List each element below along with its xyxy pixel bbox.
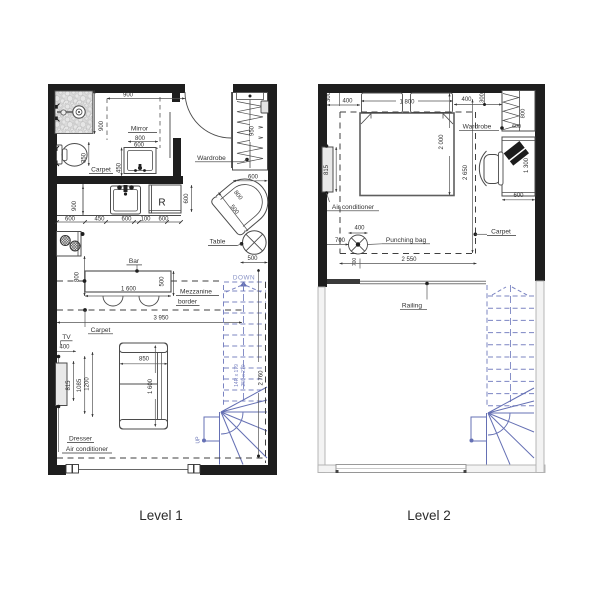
- svg-text:Carpet: Carpet: [91, 167, 111, 174]
- svg-text:850: 850: [139, 357, 150, 363]
- svg-text:Level 2: Level 2: [407, 508, 451, 523]
- svg-text:2 000: 2 000: [439, 134, 445, 150]
- svg-text:800: 800: [74, 271, 80, 282]
- svg-text:400: 400: [342, 98, 353, 104]
- svg-text:TV: TV: [62, 334, 71, 341]
- svg-text:600: 600: [513, 193, 524, 199]
- svg-text:DOWN: DOWN: [233, 275, 255, 282]
- svg-text:600: 600: [158, 217, 169, 223]
- svg-text:1 800: 1 800: [399, 99, 415, 105]
- svg-text:Air conditioner: Air conditioner: [66, 446, 109, 453]
- svg-text:800: 800: [520, 109, 526, 119]
- svg-text:Railing: Railing: [402, 302, 422, 309]
- svg-text:2 550: 2 550: [401, 257, 417, 263]
- svg-text:700: 700: [352, 258, 358, 267]
- svg-text:600: 600: [184, 193, 190, 204]
- svg-text:815: 815: [324, 164, 330, 175]
- svg-text:600: 600: [121, 217, 132, 223]
- svg-text:400: 400: [461, 97, 472, 103]
- svg-text:R: R: [158, 198, 165, 209]
- svg-text:350: 350: [81, 152, 87, 163]
- svg-text:1 300: 1 300: [524, 157, 530, 173]
- svg-text:Table: Table: [210, 238, 226, 245]
- svg-text:2 650: 2 650: [463, 164, 469, 180]
- svg-text:2 760: 2 760: [259, 370, 265, 386]
- svg-text:1 600: 1 600: [148, 378, 154, 394]
- svg-text:Level 1: Level 1: [139, 508, 183, 523]
- svg-text:100: 100: [140, 217, 151, 223]
- svg-text:900: 900: [99, 120, 105, 131]
- svg-text:Carpet: Carpet: [91, 327, 111, 334]
- svg-text:450: 450: [116, 162, 122, 173]
- svg-text:Wardrobe: Wardrobe: [463, 123, 492, 130]
- svg-text:950: 950: [250, 125, 256, 136]
- svg-text:900: 900: [72, 200, 78, 211]
- svg-text:1085: 1085: [77, 378, 83, 392]
- svg-text:400: 400: [59, 344, 70, 350]
- svg-text:Carpet: Carpet: [491, 228, 511, 235]
- svg-text:Dresser: Dresser: [69, 436, 93, 443]
- svg-text:600: 600: [248, 174, 259, 180]
- svg-text:Mezzanine: Mezzanine: [180, 289, 212, 296]
- svg-text:3 950: 3 950: [153, 315, 169, 321]
- svg-text:1 600: 1 600: [121, 287, 137, 293]
- svg-text:250 x 270: 250 x 270: [241, 364, 247, 386]
- svg-text:14R x 179: 14R x 179: [234, 364, 240, 387]
- svg-text:500: 500: [160, 276, 166, 287]
- svg-text:300: 300: [326, 92, 332, 102]
- svg-text:450: 450: [94, 217, 105, 223]
- svg-text:815: 815: [66, 380, 72, 391]
- svg-text:border: border: [178, 299, 198, 306]
- svg-text:Mirror: Mirror: [131, 126, 149, 133]
- svg-text:UP: UP: [196, 436, 202, 444]
- svg-text:600: 600: [65, 217, 76, 223]
- svg-text:500: 500: [247, 256, 258, 262]
- svg-text:900: 900: [123, 93, 134, 99]
- svg-text:Punching bag: Punching bag: [386, 237, 427, 244]
- svg-text:Bar: Bar: [129, 258, 140, 265]
- svg-text:1200: 1200: [85, 377, 91, 391]
- svg-text:Wardrobe: Wardrobe: [197, 155, 226, 162]
- svg-text:400: 400: [354, 225, 365, 231]
- svg-text:Air conditioner: Air conditioner: [332, 204, 375, 211]
- svg-text:600: 600: [512, 124, 521, 130]
